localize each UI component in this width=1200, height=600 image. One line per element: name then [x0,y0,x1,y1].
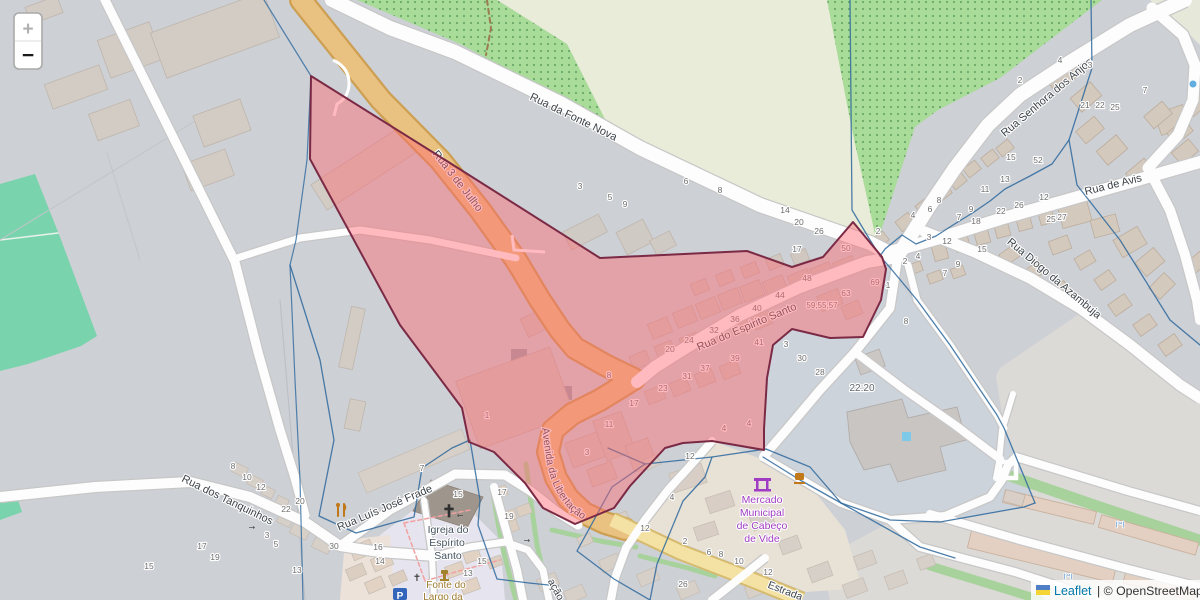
svg-text:15: 15 [977,244,987,254]
svg-text:2: 2 [683,536,688,546]
svg-text:26: 26 [678,579,688,589]
svg-text:4: 4 [911,210,916,220]
svg-text:18: 18 [971,216,981,226]
svg-text:3: 3 [265,530,270,540]
svg-text:−: − [22,44,34,67]
svg-text:27: 27 [1057,212,1067,222]
svg-text:26: 26 [814,226,824,236]
svg-text:2: 2 [876,226,881,236]
svg-text:16: 16 [373,542,383,552]
svg-text:Largo da: Largo da [423,592,463,600]
svg-text:3: 3 [1088,60,1093,70]
svg-text:12: 12 [640,523,650,533]
svg-text:28: 28 [815,367,825,377]
svg-text:8: 8 [937,195,942,205]
svg-text:7: 7 [943,268,948,278]
svg-text:25: 25 [1046,214,1056,224]
svg-text:Mercado: Mercado [742,494,783,506]
svg-text:10: 10 [242,472,252,482]
svg-text:+: + [22,19,33,40]
svg-text:8: 8 [718,185,723,195]
svg-text:30: 30 [329,541,339,551]
svg-text:8: 8 [231,461,236,471]
svg-text:| © OpenStreetMap: | © OpenStreetMap [1097,584,1200,598]
svg-text:Santo: Santo [434,550,462,562]
svg-text:3: 3 [927,232,932,242]
svg-text:14: 14 [375,556,385,566]
svg-text:9: 9 [956,259,961,269]
svg-text:25: 25 [1110,102,1120,112]
svg-text:4: 4 [916,251,921,261]
svg-text:20: 20 [794,217,804,227]
svg-text:Fonte do: Fonte do [426,580,466,591]
svg-text:13: 13 [292,565,302,575]
svg-text:30: 30 [797,353,807,363]
svg-text:7: 7 [420,463,425,473]
svg-text:6: 6 [928,204,933,214]
svg-text:3: 3 [578,181,583,191]
svg-text:5: 5 [608,192,613,202]
svg-text:22: 22 [1095,100,1105,110]
svg-text:12: 12 [685,451,695,461]
svg-text:12: 12 [256,482,266,492]
svg-text:12: 12 [942,236,952,246]
svg-text:9: 9 [623,199,628,209]
svg-text:21: 21 [1080,100,1090,110]
svg-text:17: 17 [197,541,207,551]
svg-text:✝: ✝ [413,573,421,584]
svg-text:22: 22 [996,206,1006,216]
svg-text:1: 1 [886,280,891,290]
svg-text:4: 4 [1058,55,1063,65]
svg-text:6: 6 [707,547,712,557]
svg-text:➞: ➞ [524,536,531,545]
svg-text:19: 19 [210,552,220,562]
svg-text:Municipal: Municipal [740,507,784,519]
svg-text:➞: ➞ [456,511,463,520]
svg-text:15: 15 [477,556,487,566]
svg-text:6: 6 [684,176,689,186]
svg-text:2: 2 [903,256,908,266]
svg-text:22: 22 [281,504,291,514]
svg-text:20: 20 [295,496,305,506]
svg-text:52: 52 [1033,155,1043,165]
svg-text:22:20: 22:20 [849,383,874,394]
svg-text:de Cabeço: de Cabeço [737,520,788,532]
svg-text:26: 26 [1014,200,1024,210]
svg-text:10: 10 [734,556,744,566]
svg-text:8: 8 [904,316,909,326]
svg-text:15: 15 [144,561,154,571]
svg-text:15: 15 [1006,152,1016,162]
svg-text:2: 2 [1018,75,1023,85]
svg-text:19: 19 [504,511,514,521]
svg-text:12: 12 [763,567,773,577]
svg-text:Igreja do: Igreja do [428,524,469,536]
svg-text:17: 17 [497,487,507,497]
svg-text:Espírito: Espírito [429,537,465,549]
svg-text:|³⁴|: |³⁴| [1064,573,1073,580]
svg-text:7: 7 [957,212,962,222]
svg-text:5: 5 [274,539,279,549]
svg-text:3: 3 [784,339,789,349]
svg-text:➞: ➞ [249,523,256,532]
svg-text:12: 12 [1039,192,1049,202]
svg-text:|³⁴|: |³⁴| [1116,521,1125,528]
svg-text:4: 4 [670,492,675,502]
svg-text:14: 14 [780,205,790,215]
svg-text:13: 13 [463,568,473,578]
svg-text:9: 9 [969,204,974,214]
svg-text:17: 17 [792,244,802,254]
svg-text:8: 8 [719,549,724,559]
svg-text:13: 13 [1000,174,1010,184]
svg-text:P: P [397,591,404,600]
svg-text:✝: ✝ [442,502,456,521]
svg-text:7: 7 [1143,85,1148,95]
svg-text:15: 15 [453,489,463,499]
svg-text:11: 11 [981,184,990,194]
svg-text:Leaflet: Leaflet [1054,584,1092,598]
svg-text:de Vide: de Vide [744,533,780,545]
